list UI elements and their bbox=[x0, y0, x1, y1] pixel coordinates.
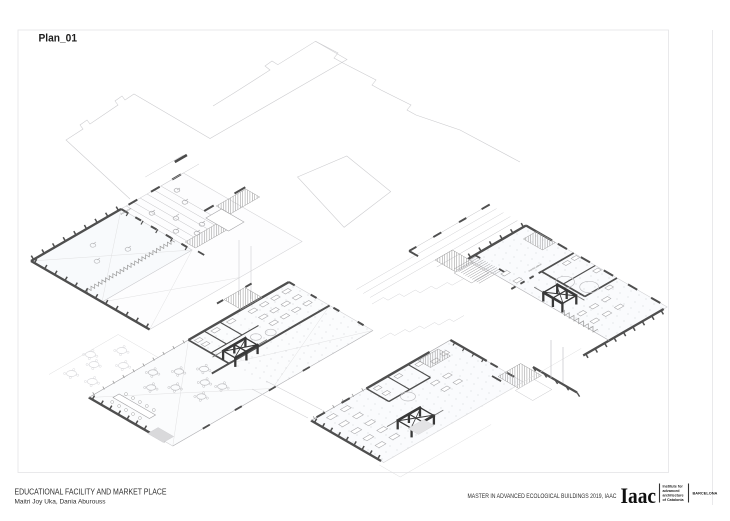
svg-text:MASTER IN ADVANCED ECOLOGICAL: MASTER IN ADVANCED ECOLOGICAL BUILDINGS … bbox=[468, 493, 617, 500]
svg-text:of Catalonia: of Catalonia bbox=[663, 498, 685, 502]
svg-text:advanced: advanced bbox=[663, 489, 681, 493]
svg-text:Plan_01: Plan_01 bbox=[39, 33, 78, 45]
svg-text:Maitri Joy Uka, Dania Aburouss: Maitri Joy Uka, Dania Aburouss bbox=[15, 499, 107, 506]
svg-text:Iaac: Iaac bbox=[621, 483, 657, 508]
svg-text:architecture: architecture bbox=[663, 494, 684, 498]
svg-text:BARCELONA: BARCELONA bbox=[693, 491, 718, 496]
svg-text:Institute for: Institute for bbox=[663, 485, 684, 489]
svg-text:EDUCATIONAL FACILITY AND MARKE: EDUCATIONAL FACILITY AND MARKET PLACE bbox=[15, 487, 167, 497]
